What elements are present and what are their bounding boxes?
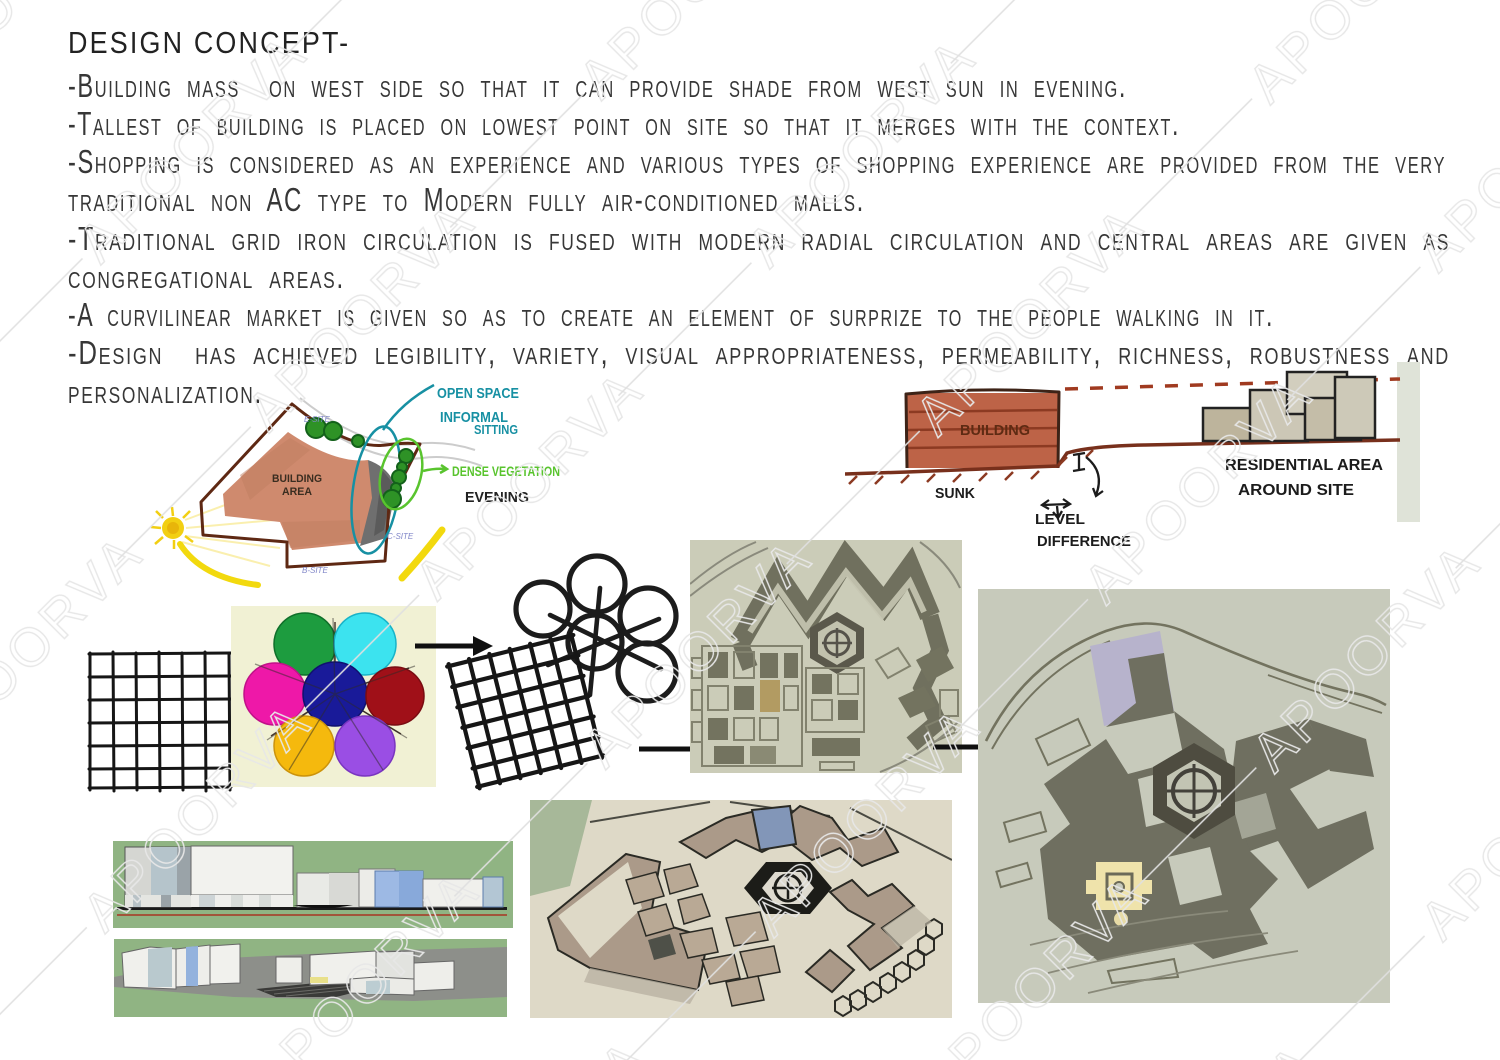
svg-text:LEVEL: LEVEL [1035, 511, 1085, 528]
svg-text:EVENING: EVENING [465, 489, 529, 506]
svg-text:AROUND SITE: AROUND SITE [1238, 482, 1354, 499]
svg-text:E-SITE: E-SITE [304, 415, 330, 424]
svg-text:RESIDENTIAL AREA: RESIDENTIAL AREA [1225, 457, 1383, 474]
svg-text:SITTING: SITTING [474, 422, 518, 437]
svg-text:C-SITE: C-SITE [387, 532, 414, 541]
svg-text:BUILDING: BUILDING [272, 473, 322, 485]
svg-text:B-SITE: B-SITE [302, 566, 328, 575]
svg-text:SUNK: SUNK [935, 485, 975, 502]
svg-text:BUILDING: BUILDING [960, 422, 1030, 439]
svg-text:DIFFERENCE: DIFFERENCE [1037, 533, 1131, 550]
svg-text:OPEN SPACE: OPEN SPACE [437, 385, 519, 402]
svg-text:AREA: AREA [282, 486, 312, 498]
svg-text:DENSE VEGETATION: DENSE VEGETATION [452, 463, 560, 479]
